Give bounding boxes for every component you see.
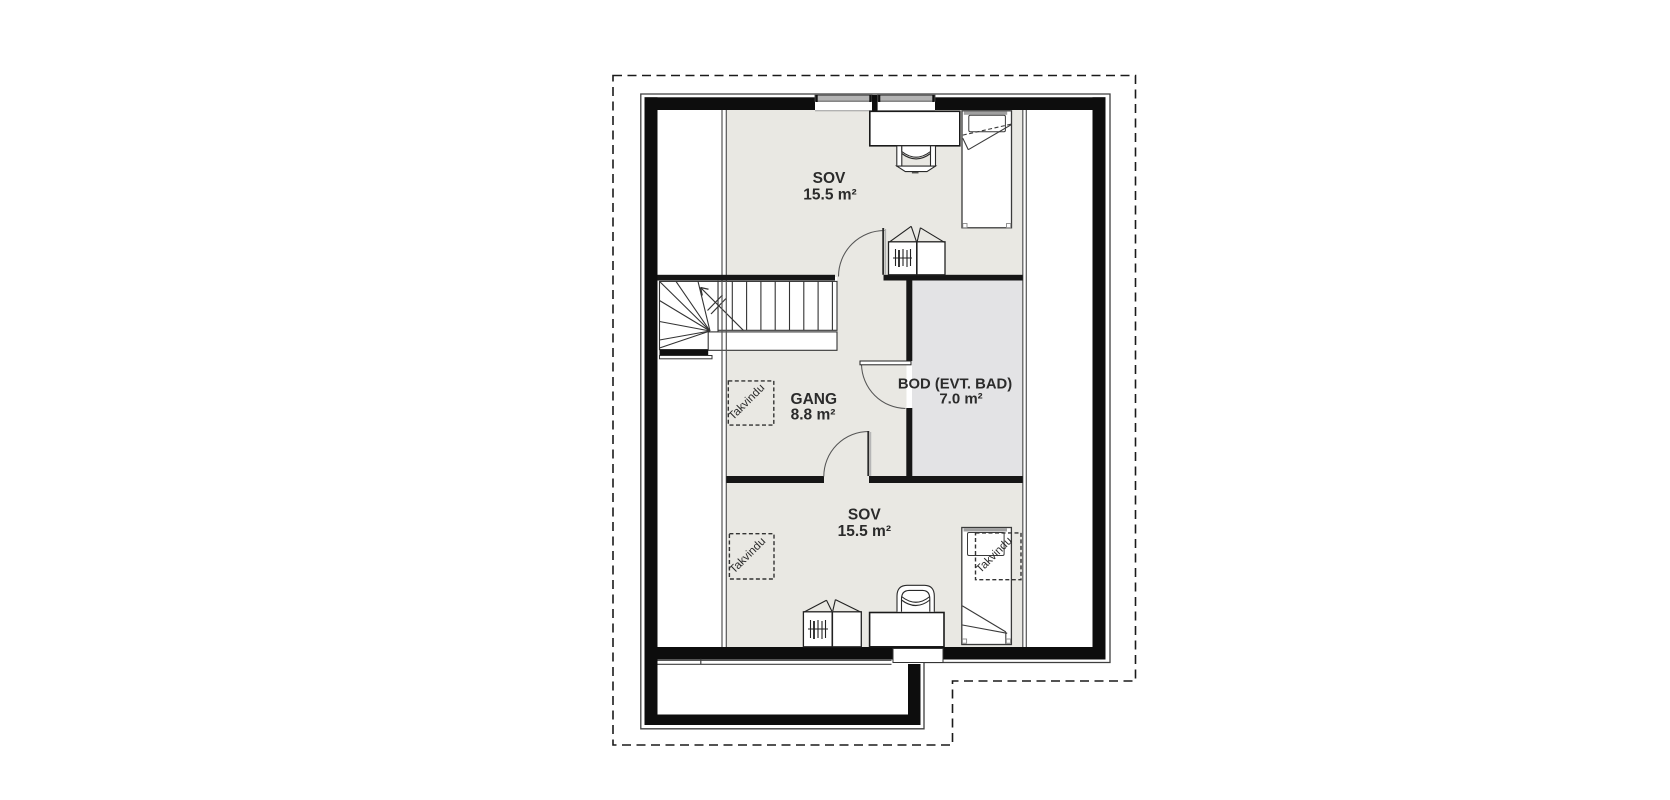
svg-text:7.0 m²: 7.0 m²: [939, 391, 982, 408]
svg-text:15.5 m²: 15.5 m²: [803, 187, 856, 204]
svg-text:8.8 m²: 8.8 m²: [791, 407, 836, 424]
svg-text:SOV: SOV: [813, 170, 846, 187]
svg-text:15.5 m²: 15.5 m²: [838, 523, 891, 540]
svg-text:SOV: SOV: [848, 507, 881, 524]
svg-text:GANG: GANG: [791, 391, 838, 408]
